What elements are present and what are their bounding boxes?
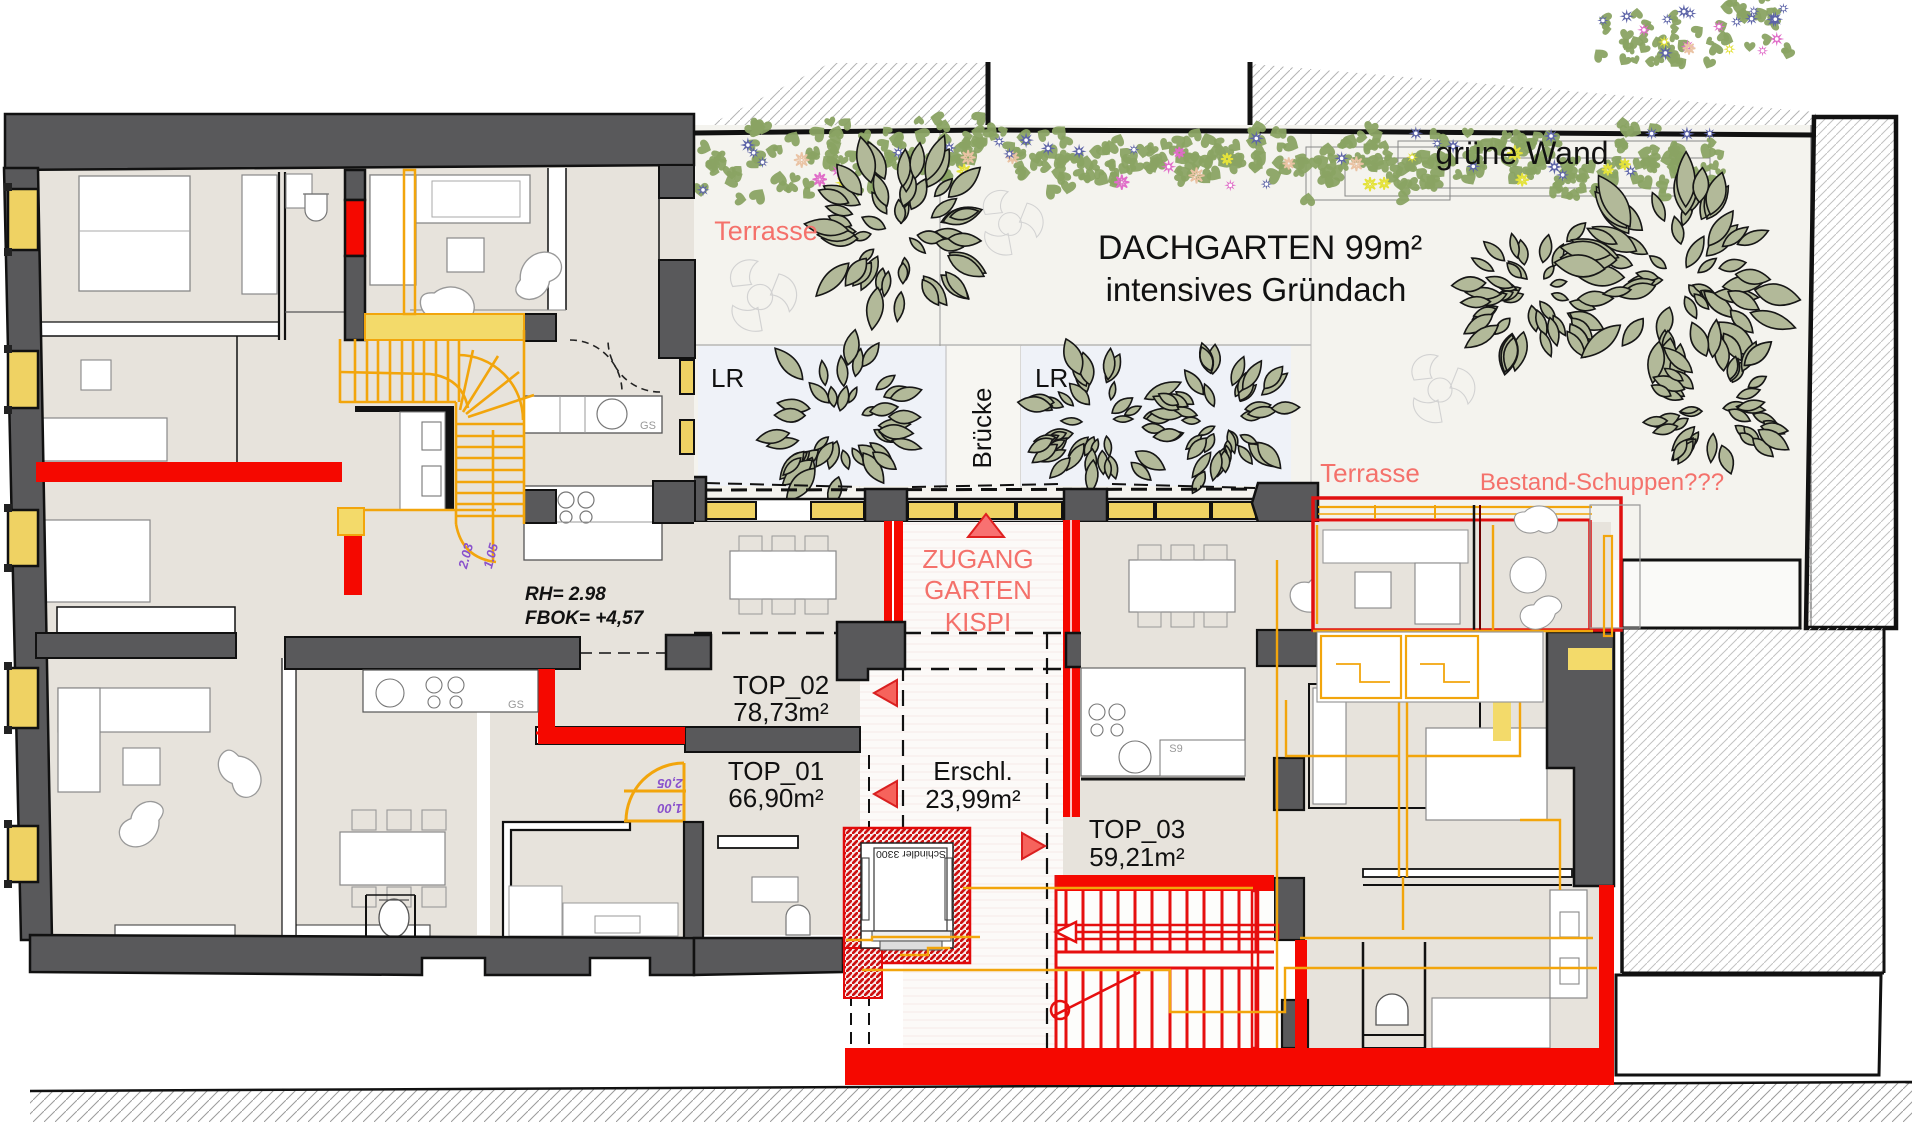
svg-text:TOP_01: TOP_01 <box>728 756 824 786</box>
svg-text:66,90m²: 66,90m² <box>728 783 824 813</box>
svg-text:FBOK= +4,57: FBOK= +4,57 <box>525 608 645 629</box>
svg-text:Schindler 3300: Schindler 3300 <box>876 848 946 860</box>
svg-text:intensives Gründach: intensives Gründach <box>1106 271 1407 308</box>
svg-text:Erschl.: Erschl. <box>933 756 1012 786</box>
svg-text:S9: S9 <box>1169 743 1182 755</box>
svg-text:GARTEN: GARTEN <box>924 575 1032 605</box>
svg-text:DACHGARTEN 99m²: DACHGARTEN 99m² <box>1098 229 1422 267</box>
svg-text:grüne Wand: grüne Wand <box>1435 135 1608 171</box>
svg-text:23,99m²: 23,99m² <box>925 784 1021 814</box>
svg-text:Terrasse: Terrasse <box>1320 458 1420 488</box>
svg-text:TOP_02: TOP_02 <box>733 670 829 700</box>
svg-text:ZUGANG: ZUGANG <box>922 544 1033 574</box>
svg-text:Brücke: Brücke <box>967 388 997 469</box>
svg-text:Terrasse: Terrasse <box>714 216 818 246</box>
svg-text:RH= 2.98: RH= 2.98 <box>525 584 606 605</box>
svg-text:Bestand-Schuppen???: Bestand-Schuppen??? <box>1480 469 1724 496</box>
svg-text:LR: LR <box>1035 363 1068 393</box>
svg-text:78,73m²: 78,73m² <box>733 697 829 727</box>
svg-text:GS: GS <box>640 420 656 432</box>
svg-text:LR: LR <box>711 363 744 393</box>
svg-text:59,21m²: 59,21m² <box>1089 842 1185 872</box>
svg-text:GS: GS <box>508 699 524 711</box>
svg-text:TOP_03: TOP_03 <box>1089 814 1185 844</box>
svg-text:2,05: 2,05 <box>657 776 684 791</box>
svg-text:1,00: 1,00 <box>657 801 683 816</box>
